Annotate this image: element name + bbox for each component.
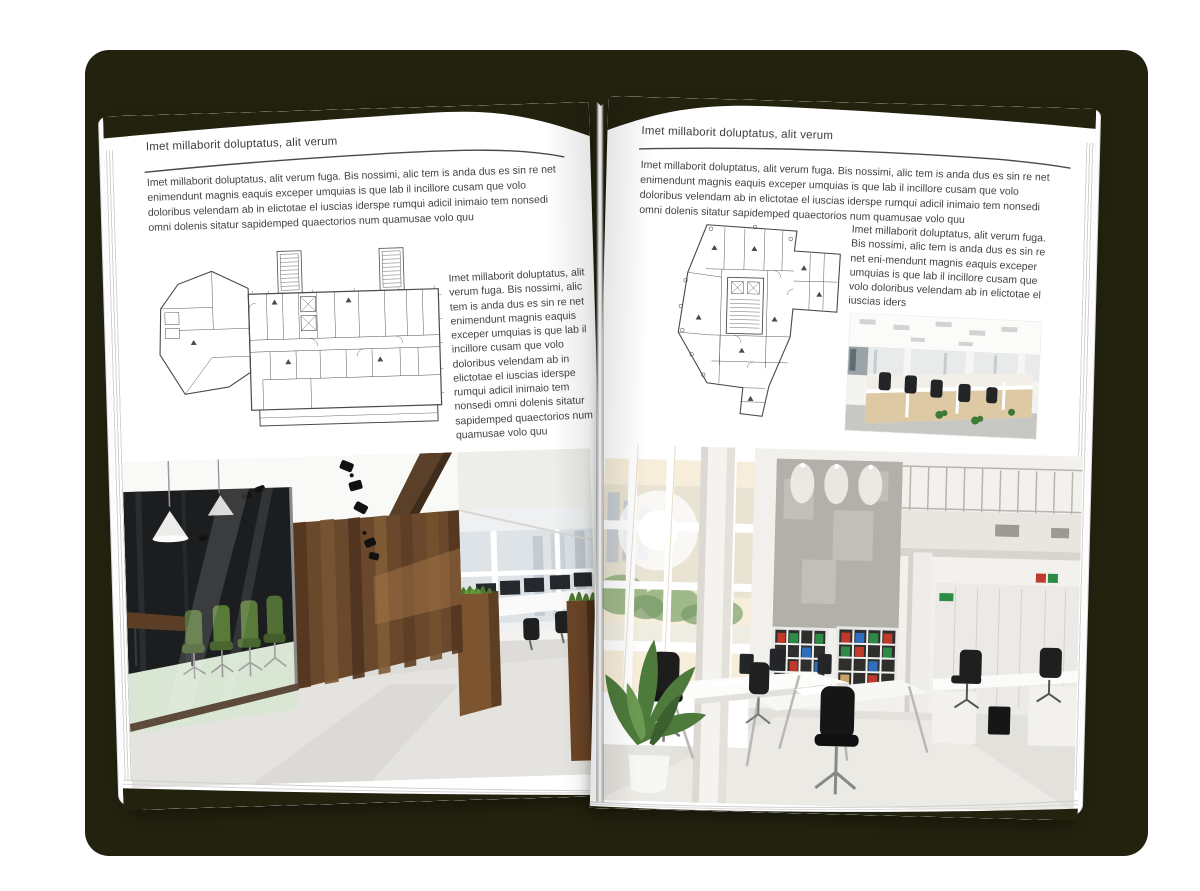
left-page-photo xyxy=(122,448,599,788)
right-page-side-text: Imet millaborit doluptatus, alit verum f… xyxy=(848,222,1054,317)
photo-office-dark-wood-glass-meeting-room xyxy=(122,448,599,788)
photo-white-loft-atrium-office xyxy=(596,444,1083,812)
right-page-photo-small xyxy=(845,313,1042,440)
left-page: Imet millaborit doluptatus, alit verum I… xyxy=(103,102,609,810)
spine-top-notch xyxy=(581,86,621,106)
floor-plan-right xyxy=(640,213,847,426)
left-page-side-text: Imet millaborit doluptatus, alit verum f… xyxy=(448,265,606,443)
book-spine xyxy=(596,100,604,802)
magazine-mockup-scene: Imet millaborit doluptatus, alit verum I… xyxy=(0,0,1200,891)
right-page: Imet millaborit doluptatus, alit verum I… xyxy=(590,96,1096,821)
left-page-intro: Imet millaborit doluptatus, alit verum f… xyxy=(147,162,569,236)
right-page-photo-large xyxy=(596,444,1083,812)
floor-plan-left xyxy=(147,235,447,440)
photo-open-plan-workstations xyxy=(845,313,1042,440)
